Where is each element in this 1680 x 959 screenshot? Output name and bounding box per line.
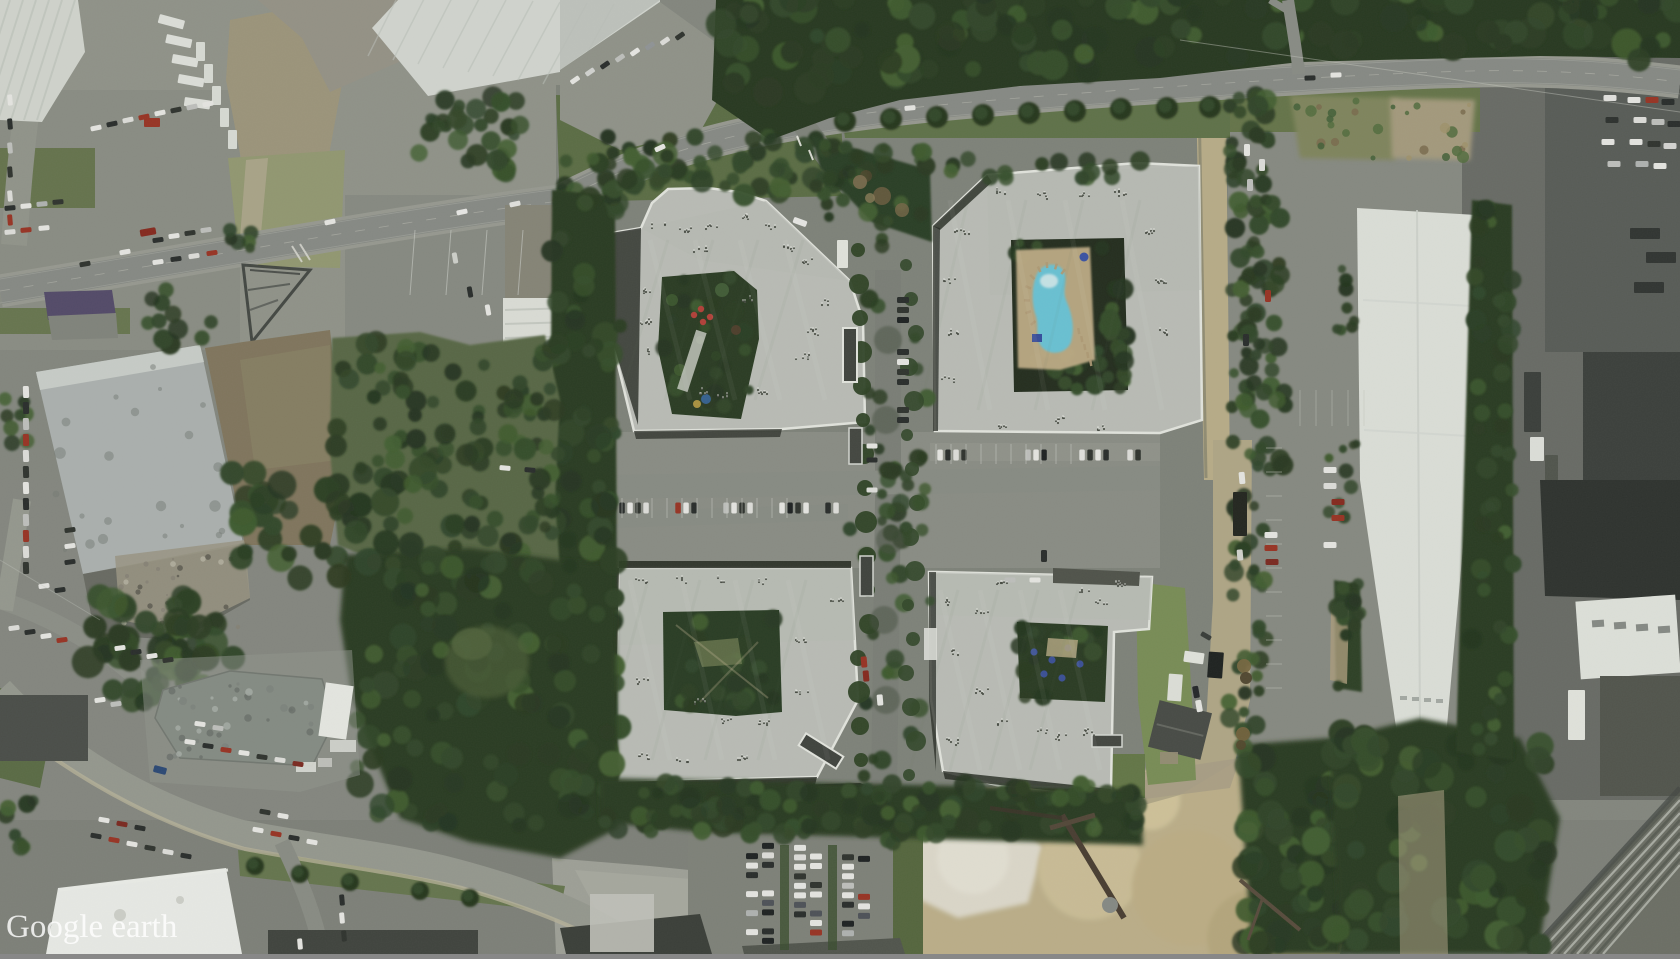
svg-text:Google earth: Google earth (6, 909, 178, 945)
